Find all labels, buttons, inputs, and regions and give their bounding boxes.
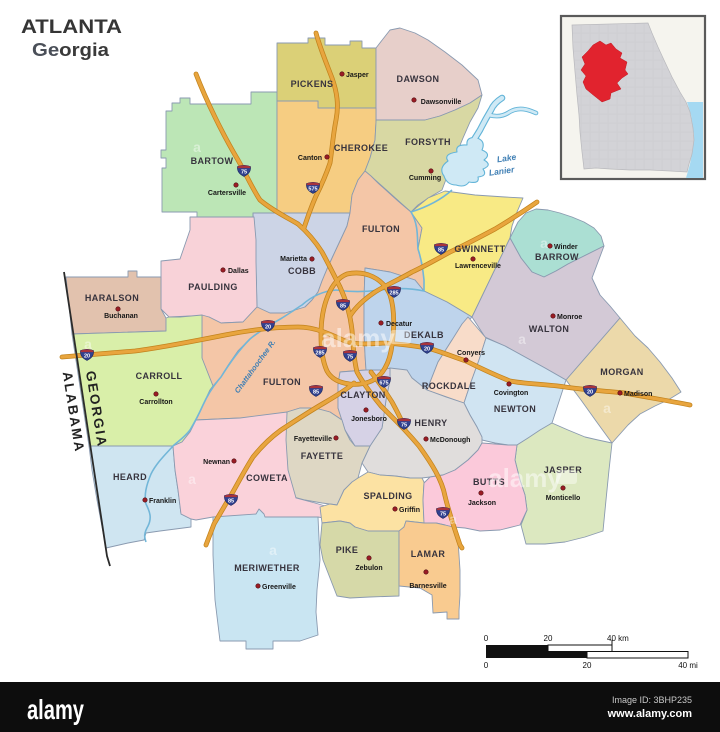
svg-text:85: 85: [228, 499, 234, 505]
svg-text:Georgia: Georgia: [32, 40, 110, 60]
svg-text:75: 75: [241, 170, 247, 176]
svg-text:85: 85: [313, 390, 319, 396]
svg-text:20: 20: [544, 634, 553, 643]
svg-text:alamy: alamy: [488, 463, 562, 493]
svg-text:HEARD: HEARD: [113, 472, 147, 482]
svg-text:40 mi: 40 mi: [678, 661, 698, 670]
svg-text:Dallas: Dallas: [228, 268, 249, 275]
svg-text:a: a: [124, 587, 132, 603]
svg-text:FULTON: FULTON: [362, 224, 400, 234]
svg-text:alamy: alamy: [321, 323, 395, 353]
svg-text:HARALSON: HARALSON: [85, 293, 139, 303]
svg-text:COWETA: COWETA: [246, 473, 288, 483]
svg-text:a: a: [518, 331, 526, 347]
svg-text:Covington: Covington: [494, 390, 529, 397]
svg-text:20: 20: [583, 661, 592, 670]
svg-text:Lawrenceville: Lawrenceville: [455, 263, 501, 270]
svg-text:20: 20: [424, 347, 430, 353]
svg-text:75: 75: [347, 355, 353, 361]
svg-text:a: a: [449, 511, 457, 527]
svg-text:WALTON: WALTON: [529, 324, 570, 334]
svg-text:PAULDING: PAULDING: [188, 282, 238, 292]
svg-text:Jackson: Jackson: [468, 500, 496, 507]
svg-text:FULTON: FULTON: [263, 377, 301, 387]
svg-text:75: 75: [440, 512, 446, 518]
svg-text:a: a: [193, 139, 201, 155]
svg-text:Franklin: Franklin: [149, 498, 176, 505]
svg-text:Cartersville: Cartersville: [208, 190, 246, 197]
svg-text:40 km: 40 km: [607, 634, 629, 643]
svg-text:a: a: [540, 235, 548, 251]
svg-text:MORGAN: MORGAN: [600, 367, 643, 377]
svg-text:0: 0: [484, 634, 489, 643]
svg-text:Image ID: 3BHP235: Image ID: 3BHP235: [612, 695, 692, 705]
svg-text:alamy: alamy: [27, 694, 84, 725]
svg-text:Jonesboro: Jonesboro: [351, 416, 387, 423]
svg-text:Winder: Winder: [554, 244, 578, 251]
svg-text:675: 675: [379, 381, 388, 387]
svg-text:Barnesville: Barnesville: [409, 583, 446, 590]
svg-text:LAMAR: LAMAR: [411, 549, 446, 559]
svg-text:20: 20: [265, 325, 271, 331]
svg-text:HENRY: HENRY: [414, 418, 447, 428]
svg-text:BARROW: BARROW: [535, 252, 579, 262]
svg-text:BARTOW: BARTOW: [191, 156, 234, 166]
svg-text:Greenville: Greenville: [262, 584, 296, 591]
svg-text:85: 85: [438, 248, 444, 254]
svg-text:a: a: [269, 542, 277, 558]
svg-text:ATLANTA: ATLANTA: [21, 17, 122, 38]
svg-text:a: a: [84, 336, 92, 352]
svg-text:Conyers: Conyers: [457, 350, 485, 357]
svg-text:Fayetteville: Fayetteville: [294, 436, 332, 443]
svg-text:Canton: Canton: [298, 155, 322, 162]
svg-text:McDonough: McDonough: [430, 437, 470, 444]
svg-text:285: 285: [389, 291, 398, 297]
svg-text:Marietta: Marietta: [280, 256, 307, 263]
svg-text:ROCKDALE: ROCKDALE: [422, 381, 476, 391]
svg-text:PICKENS: PICKENS: [291, 79, 334, 89]
svg-text:NEWTON: NEWTON: [494, 404, 536, 414]
svg-text:Cumming: Cumming: [409, 175, 441, 182]
svg-text:85: 85: [340, 304, 346, 310]
svg-text:FORSYTH: FORSYTH: [405, 137, 451, 147]
svg-text:575: 575: [308, 187, 317, 193]
svg-text:Madison: Madison: [624, 391, 652, 398]
svg-text:Monroe: Monroe: [557, 314, 582, 321]
svg-text:Griffin: Griffin: [399, 507, 420, 514]
svg-text:CARROLL: CARROLL: [136, 371, 183, 381]
svg-text:FAYETTE: FAYETTE: [301, 451, 343, 461]
svg-text:CHEROKEE: CHEROKEE: [334, 143, 388, 153]
svg-text:MERIWETHER: MERIWETHER: [234, 563, 300, 573]
svg-text:CLAYTON: CLAYTON: [340, 390, 385, 400]
svg-text:Carrollton: Carrollton: [139, 399, 172, 406]
svg-text:Newnan: Newnan: [203, 459, 230, 466]
svg-text:SPALDING: SPALDING: [363, 491, 412, 501]
svg-text:Monticello: Monticello: [546, 495, 581, 502]
svg-text:DAWSON: DAWSON: [397, 74, 440, 84]
svg-text:0: 0: [484, 661, 489, 670]
svg-text:a: a: [603, 400, 611, 416]
svg-text:PIKE: PIKE: [336, 545, 359, 555]
svg-text:a: a: [188, 471, 196, 487]
svg-text:20: 20: [587, 390, 593, 396]
svg-text:GWINNETT: GWINNETT: [454, 244, 505, 254]
svg-text:www.alamy.com: www.alamy.com: [607, 708, 693, 720]
svg-text:Dawsonville: Dawsonville: [421, 99, 462, 106]
svg-text:Jasper: Jasper: [346, 72, 369, 79]
svg-text:Zebulon: Zebulon: [355, 565, 382, 572]
svg-text:20: 20: [84, 354, 90, 360]
svg-text:Buchanan: Buchanan: [104, 313, 138, 320]
svg-text:COBB: COBB: [288, 266, 316, 276]
svg-text:75: 75: [401, 423, 407, 429]
